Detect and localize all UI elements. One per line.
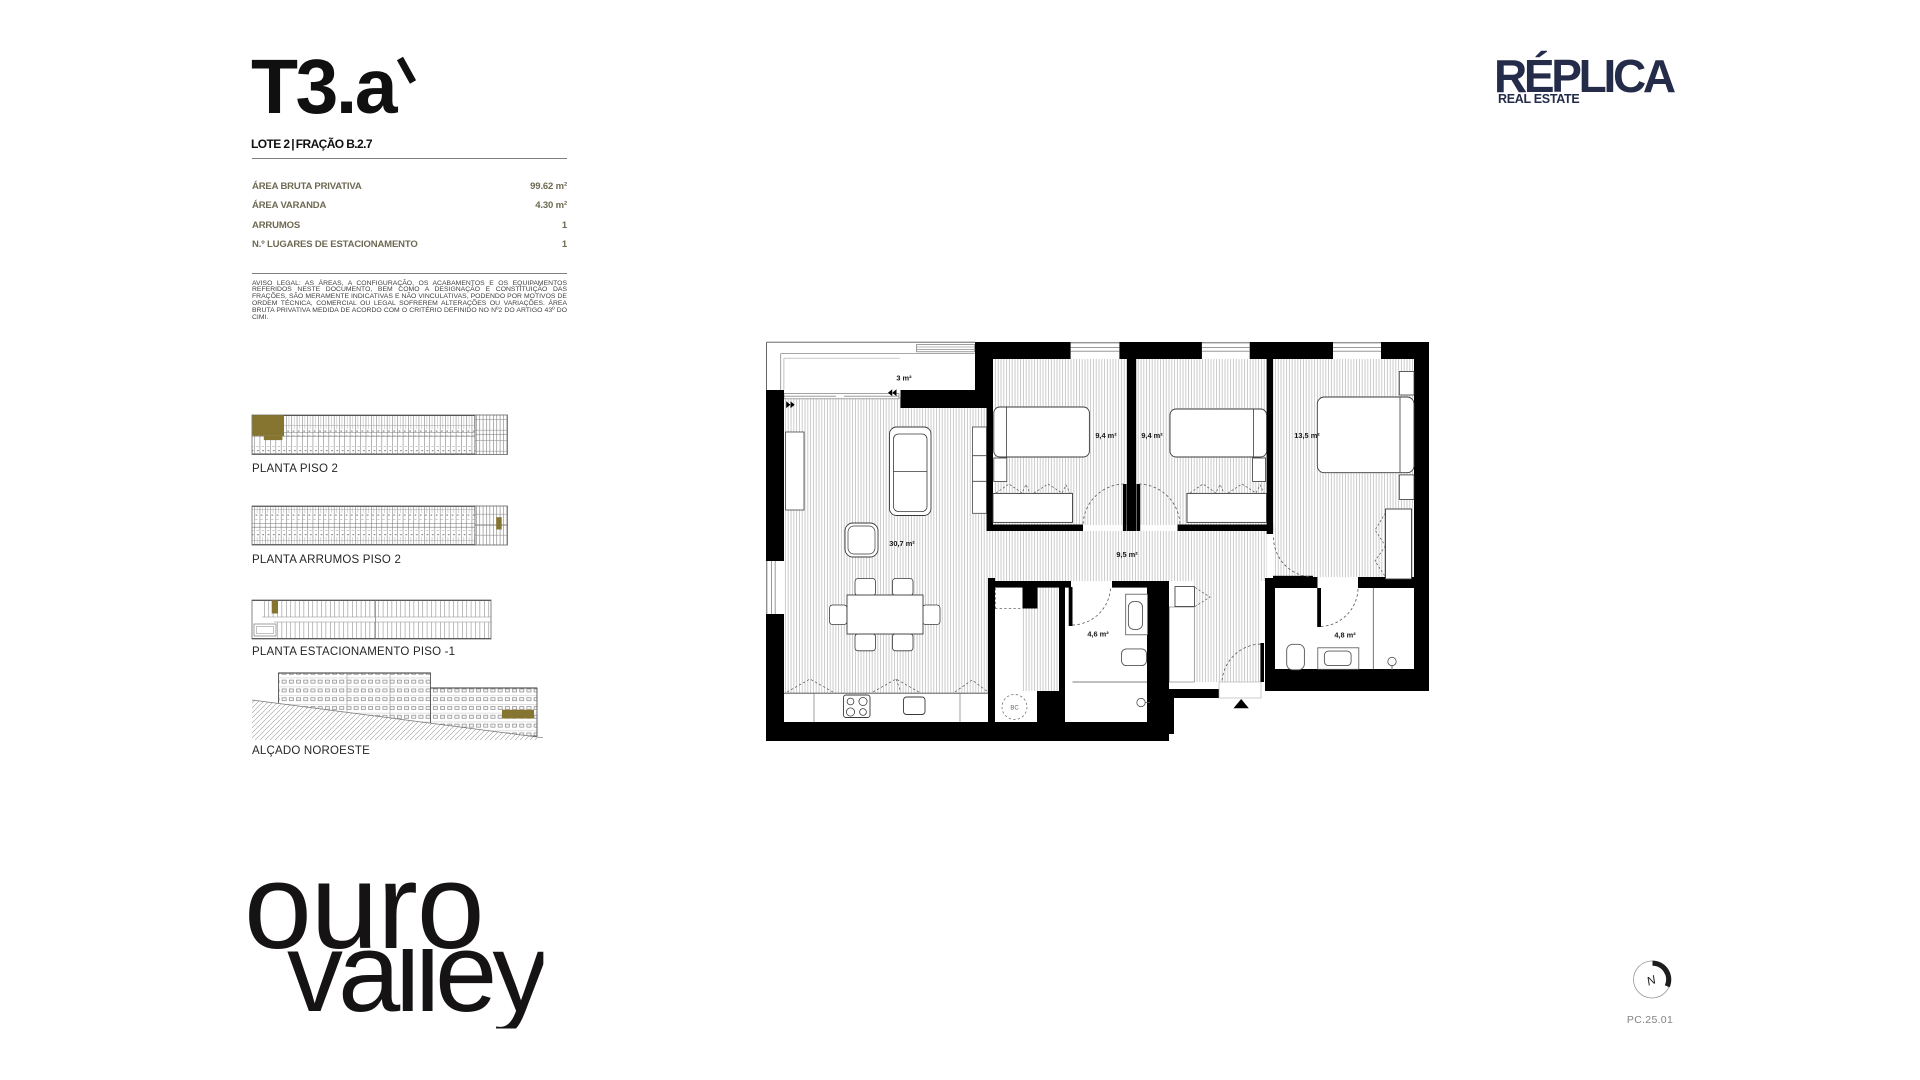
svg-text:9,4 m²: 9,4 m²	[1141, 431, 1163, 440]
svg-text:9,4 m²: 9,4 m²	[1095, 431, 1117, 440]
svg-text:4,6 m²: 4,6 m²	[1087, 630, 1109, 639]
svg-text:9,5 m²: 9,5 m²	[1116, 550, 1138, 559]
svg-text:4,8 m²: 4,8 m²	[1334, 631, 1356, 640]
svg-text:3 m²: 3 m²	[896, 374, 912, 383]
svg-text:13,5 m²: 13,5 m²	[1294, 431, 1320, 440]
svg-text:30,7 m²: 30,7 m²	[889, 539, 915, 548]
svg-text:BC: BC	[1010, 705, 1019, 711]
